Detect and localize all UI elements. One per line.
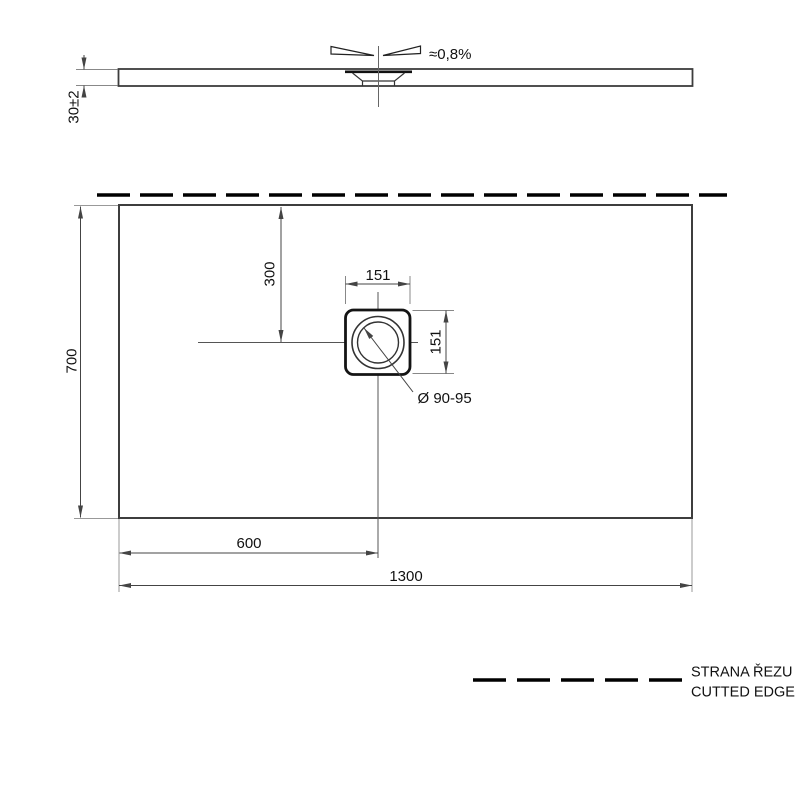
legend-label-cz: STRANA ŘEZU — [691, 664, 793, 681]
legend-label-en: CUTTED EDGE — [691, 685, 795, 701]
dim-1300-label: 1300 — [389, 568, 422, 585]
dim-diameter-label: Ø 90-95 — [418, 390, 472, 407]
technical-drawing-shower-tray: ≈0,8% 30±2 300 151 151 Ø 9 — [0, 0, 800, 800]
slope-label: ≈0,8% — [429, 46, 471, 63]
slope-wedge-left-icon — [331, 47, 374, 56]
legend: STRANA ŘEZU CUTTED EDGE — [473, 664, 795, 701]
thickness-dim-label: 30±2 — [65, 90, 82, 123]
slope-wedge-right-icon — [383, 46, 421, 56]
dim-300-label: 300 — [261, 261, 278, 286]
dim-700-label: 700 — [63, 348, 80, 373]
dim-151-width-label: 151 — [365, 267, 390, 284]
plan-view: 300 151 151 Ø 90-95 600 1300 700 — [63, 205, 692, 592]
dim-600-label: 600 — [236, 535, 261, 552]
side-view: ≈0,8% 30±2 — [65, 46, 692, 124]
dim-151-height-label: 151 — [427, 329, 444, 354]
drain-square — [346, 310, 411, 375]
drawing-svg: ≈0,8% 30±2 300 151 151 Ø 9 — [0, 0, 800, 800]
